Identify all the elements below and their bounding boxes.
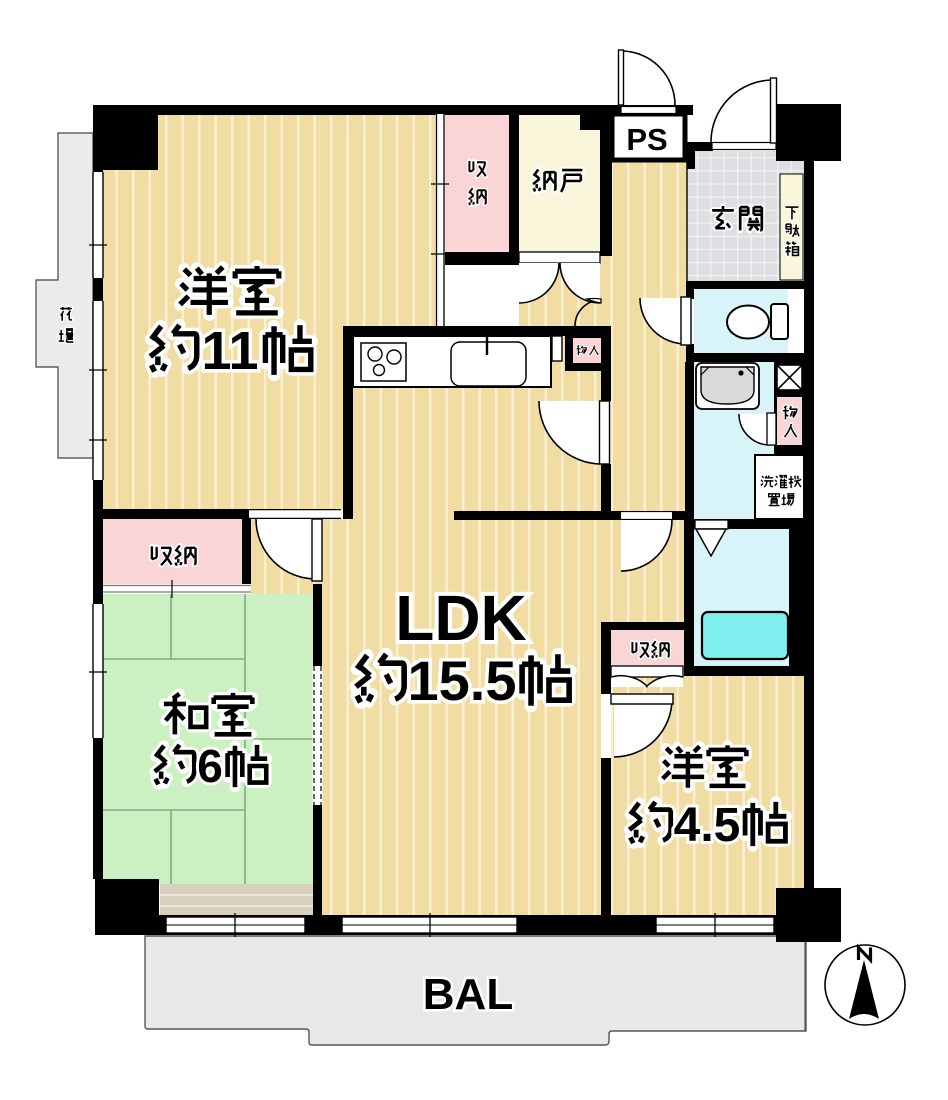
svg-text:11: 11 — [201, 321, 258, 381]
svg-text:15.5: 15.5 — [408, 649, 517, 712]
svg-text:LDK: LDK — [395, 582, 527, 654]
svg-text:BAL: BAL — [423, 970, 513, 1019]
svg-text:6: 6 — [197, 740, 223, 792]
svg-text:PS: PS — [626, 122, 667, 157]
svg-text:4.5: 4.5 — [674, 799, 741, 852]
